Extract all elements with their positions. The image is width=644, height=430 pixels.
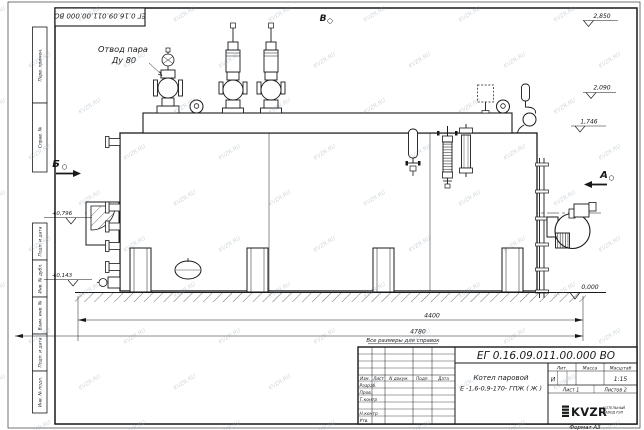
logo-sub2: ЗАВОД РЭП: [603, 411, 624, 415]
watermark-text: KVZR.RU: [313, 328, 337, 346]
watermark-text: KVZR.RU: [408, 52, 432, 70]
logo-text: KVZR: [571, 405, 607, 419]
svg-text:Все размеры для справок: Все размеры для справок: [366, 338, 440, 344]
watermark-text: KVZR.RU: [598, 328, 622, 346]
elevation-front-lower: +0,143: [44, 273, 92, 286]
svg-text:В: В: [320, 14, 327, 24]
row-nkontr: Н.контр: [360, 411, 378, 417]
elevation-front-upper: +0,796: [44, 211, 92, 224]
watermark-text: KVZR.RU: [78, 98, 102, 116]
product-name-line2: Е -1,6-0,9-170- ГПЖ ( Ж ): [460, 386, 542, 393]
view-label-v: В: [320, 14, 333, 24]
watermark-text: KVZR.RU: [503, 328, 527, 346]
title-block: ЕГ 0.16.09.011.00.000 ВО Котел паровой Е…: [358, 347, 637, 430]
stamp-inv-dubl: Инв. № дубл.: [38, 263, 44, 293]
watermark-text: KVZR.RU: [553, 190, 577, 208]
svg-text:2,090: 2,090: [593, 85, 610, 92]
header-data: Дата: [437, 376, 449, 381]
dimension-4780: 4780: [15, 329, 583, 339]
watermark-text: KVZR.RU: [173, 374, 197, 392]
steam-collector-plate: [143, 113, 512, 133]
view-label-b: Б: [52, 159, 81, 177]
svg-text:4400: 4400: [424, 313, 440, 320]
watermark-text: KVZR.RU: [598, 52, 622, 70]
ground-hatch: [75, 293, 586, 302]
boiler-drawing: [85, 23, 602, 298]
scale-value: 1:15: [614, 376, 628, 383]
top-left-doc-number: ЕГ 0.16.09.011.00.000 ВО: [53, 12, 146, 20]
svg-text:Б: Б: [52, 159, 60, 170]
format-label: Формат А3: [569, 425, 601, 430]
level-sensor: [518, 84, 537, 133]
watermark-text: KVZR.RU: [0, 6, 7, 24]
watermark-text: KVZR.RU: [123, 328, 147, 346]
watermark-text: KVZR.RU: [0, 98, 7, 116]
sheets-total: Листов 2: [603, 388, 627, 394]
margin-stamps: Перв. примен. Справ. № Подп. и дата Инв.…: [33, 27, 48, 413]
watermark-text: KVZR.RU: [28, 420, 52, 430]
svg-text:0,000: 0,000: [581, 284, 598, 291]
watermark-text: KVZR.RU: [123, 420, 147, 430]
watermark-text: KVZR.RU: [313, 52, 337, 70]
sheet-number: Лист 1: [562, 388, 580, 394]
watermark-text: KVZR.RU: [313, 420, 337, 430]
watermark-text: KVZR.RU: [218, 420, 242, 430]
drawing-sheet: { "doc_number": "ЕГ 0.16.09.011.00.000 В…: [0, 0, 644, 430]
watermark-text: KVZR.RU: [503, 52, 527, 70]
svg-text:+0,796: +0,796: [52, 211, 73, 217]
watermark-text: KVZR.RU: [598, 236, 622, 254]
lit-header: Лит.: [556, 366, 568, 372]
safety-valve-2: [257, 23, 285, 113]
level-indicator-column: [460, 124, 473, 177]
header-podp: Подп.: [416, 376, 429, 381]
row-utv: Утв.: [360, 418, 369, 424]
lit-value: И: [551, 377, 556, 384]
watermark-text: KVZR.RU: [0, 282, 7, 300]
watermark-text: KVZR.RU: [0, 190, 7, 208]
stamp-vzam-inv: Взам. инв. №: [38, 300, 44, 330]
steam-outlet-valve: [154, 48, 183, 113]
elevation-1746: 1,746: [571, 119, 606, 133]
view-label-a: А: [584, 170, 614, 188]
svg-text:А: А: [599, 170, 608, 181]
logo-sub1: КОТЕЛЬНЫЙ: [603, 405, 625, 410]
watermark-text: KVZR.RU: [598, 144, 622, 162]
svg-text:+0,143: +0,143: [52, 273, 73, 279]
stamp-podp-data-2: Подп. и дата: [38, 337, 44, 367]
watermark-text: KVZR.RU: [553, 98, 577, 116]
svg-text:1,746: 1,746: [580, 119, 597, 126]
watermark-text: KVZR.RU: [268, 374, 292, 392]
lifting-lug-right: [497, 100, 510, 113]
header-ndoc: N докум.: [389, 376, 408, 381]
stamp-sprav-no: Справ. №: [38, 126, 44, 148]
dimension-4400: 4400: [78, 313, 583, 323]
watermark-text: KVZR.RU: [0, 374, 7, 392]
reference-note: Все размеры для справок: [366, 338, 440, 344]
burner-assembly: [547, 203, 596, 249]
row-tkontr: Т.контр: [360, 397, 378, 403]
watermark-text: KVZR.RU: [78, 374, 102, 392]
header-izm: Изм.: [360, 376, 370, 381]
masshtab-header: Масштаб: [610, 366, 632, 372]
watermark-text: KVZR.RU: [218, 328, 242, 346]
svg-text:2,850: 2,850: [593, 13, 610, 20]
title-doc-number: ЕГ 0.16.09.011.00.000 ВО: [477, 350, 615, 362]
elevation-2850: 2,850: [583, 13, 618, 27]
elevation-2090: 2,090: [583, 85, 616, 99]
product-name-line1: Котел паровой: [474, 374, 529, 382]
hidden-fitting: [478, 85, 494, 113]
massa-header: Масса: [583, 366, 598, 372]
stamp-inv-podl: Инв. № подл.: [38, 377, 44, 407]
